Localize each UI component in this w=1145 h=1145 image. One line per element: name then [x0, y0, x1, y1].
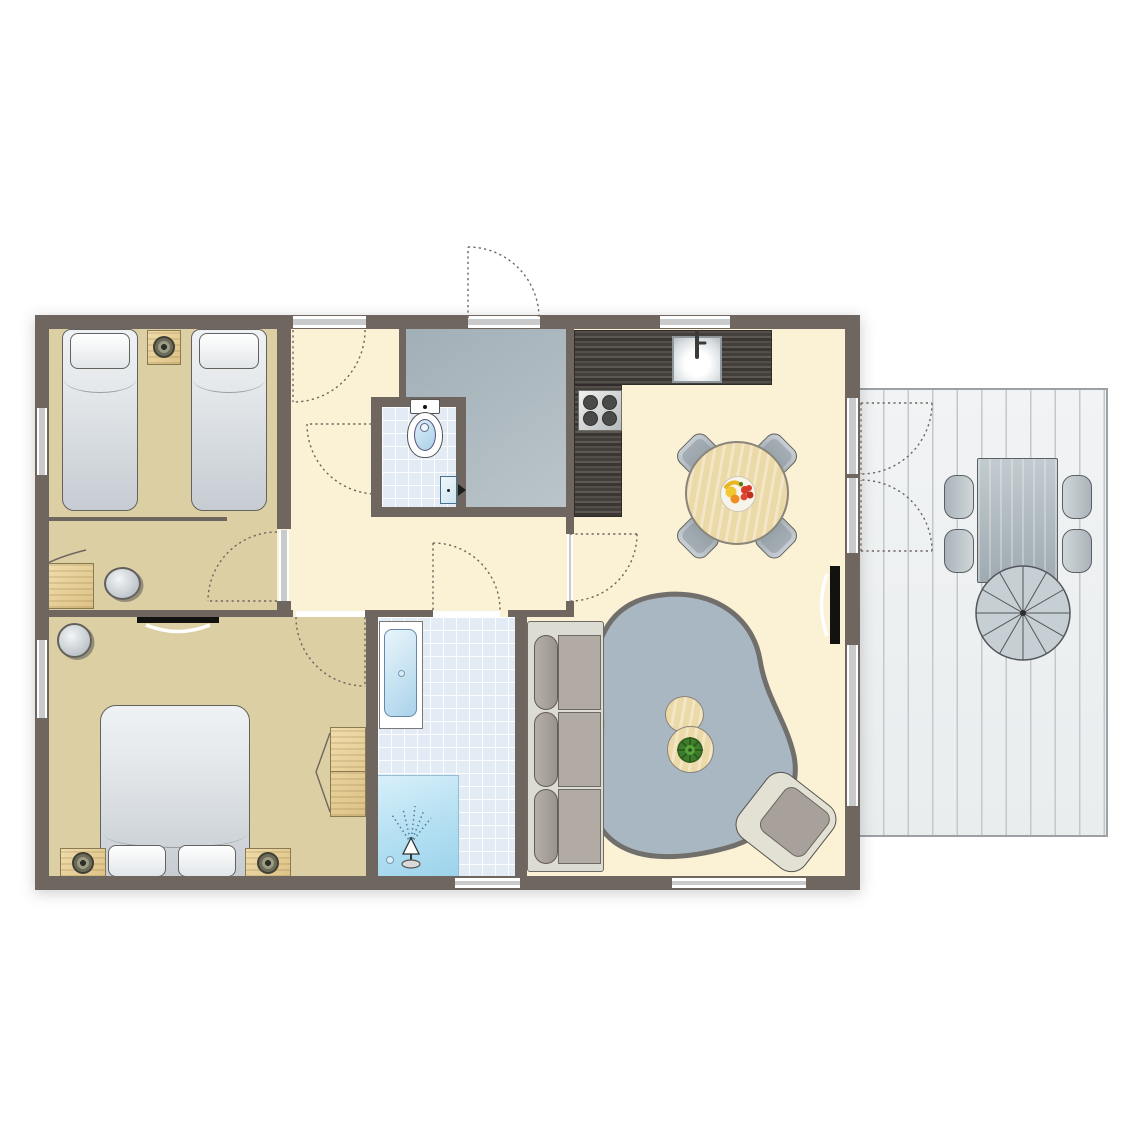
wall-exterior-top — [35, 315, 860, 329]
wall-twin-east-lower — [277, 601, 291, 610]
twin-room-door-leaf — [279, 530, 289, 601]
wall-mid-east — [508, 610, 574, 617]
terrace-door-leaf-south — [847, 478, 858, 553]
sofa-seat — [558, 635, 601, 710]
tv-living-room — [830, 566, 840, 644]
fruit-bowl — [720, 476, 756, 512]
outdoor-chair — [944, 529, 974, 573]
wall-mid-center — [365, 610, 433, 617]
lamp-icon — [72, 852, 94, 874]
window-living-south — [672, 878, 806, 888]
basin-drain-icon — [398, 670, 405, 677]
burner-icon — [602, 411, 617, 426]
pillow — [178, 845, 236, 877]
cooktop — [578, 390, 622, 431]
wall-exterior-left — [35, 315, 49, 890]
terrace-deck — [860, 388, 1108, 837]
sofa-seat — [558, 789, 601, 864]
pillow — [108, 845, 166, 877]
floor-plan-canvas — [0, 0, 1145, 1145]
wall-hall-entry — [399, 329, 406, 398]
wardrobe — [330, 727, 366, 817]
coffee-table-large — [667, 726, 714, 773]
master-door-leaf — [296, 611, 365, 617]
window-master-bedroom — [37, 640, 47, 718]
window-bathroom — [455, 878, 520, 888]
pillow — [199, 333, 259, 369]
burner-icon — [583, 395, 598, 410]
window-twin-bedroom — [37, 408, 47, 475]
front-door-leaf — [468, 316, 540, 328]
kitchen-sink — [672, 336, 722, 383]
wall-twin-east-upper — [277, 329, 291, 529]
sofa-seat — [558, 712, 601, 787]
bathroom-door-leaf — [433, 611, 500, 617]
wall-bathroom-west — [366, 617, 378, 876]
burner-icon — [583, 411, 598, 426]
desk — [48, 563, 94, 609]
wall-mid-west — [35, 610, 293, 617]
sofa-back-cushion — [534, 635, 558, 710]
window-living-east — [847, 645, 858, 806]
lamp-icon — [153, 336, 175, 358]
pouf — [57, 623, 92, 658]
interior-entry-door-leaf — [293, 316, 366, 328]
shower-drain-icon — [386, 856, 394, 864]
burner-icon — [602, 395, 617, 410]
toilet-flush-icon — [420, 423, 429, 432]
outdoor-chair — [1062, 529, 1092, 573]
outdoor-chair — [944, 475, 974, 519]
stool — [104, 567, 141, 600]
wall-nook-partition — [35, 517, 227, 521]
outdoor-table — [977, 458, 1058, 583]
wardrobe-divider — [331, 771, 365, 772]
wall-kitchen-divider-upper — [566, 329, 574, 534]
lamp-icon — [257, 852, 279, 874]
window-kitchen — [660, 316, 730, 328]
pillow — [70, 333, 130, 369]
wall-entry-south — [466, 507, 574, 517]
living-room-door-leaf — [567, 534, 573, 601]
sofa-back-cushion — [534, 712, 558, 787]
wall-bathroom-east — [515, 617, 527, 876]
sofa-back-cushion — [534, 789, 558, 864]
wc-door — [440, 476, 457, 504]
terrace-door-leaf-north — [847, 398, 858, 474]
outdoor-chair — [1062, 475, 1092, 519]
